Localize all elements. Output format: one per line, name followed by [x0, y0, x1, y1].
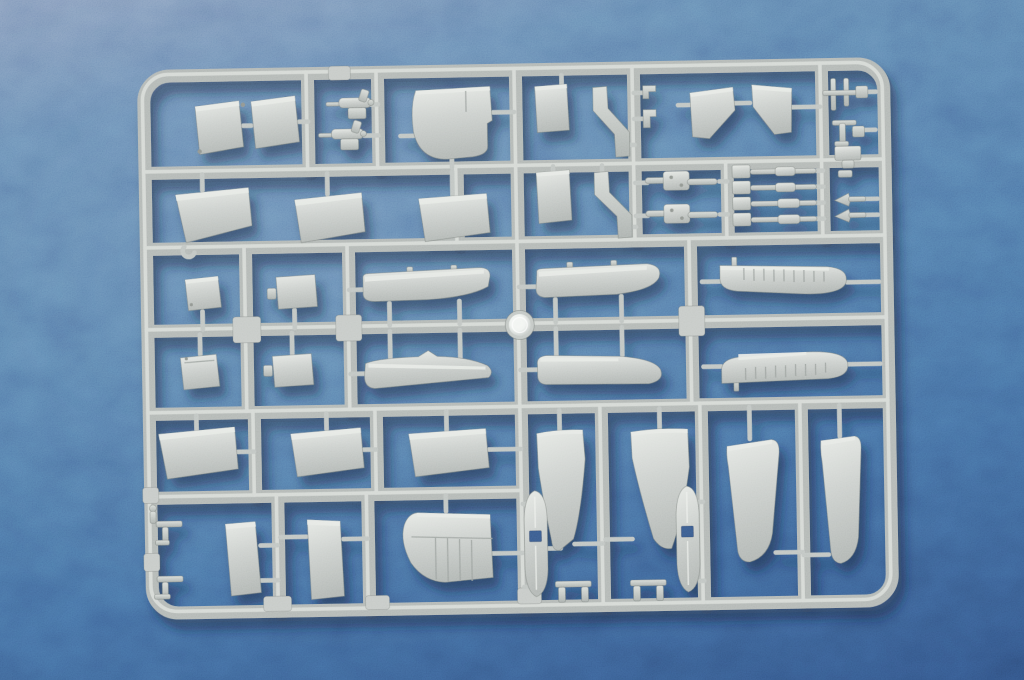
- photo-grain-texture: [0, 0, 1024, 680]
- photo-of-model-kit-sprue: [0, 0, 1024, 680]
- sprue-scene: [0, 0, 1024, 680]
